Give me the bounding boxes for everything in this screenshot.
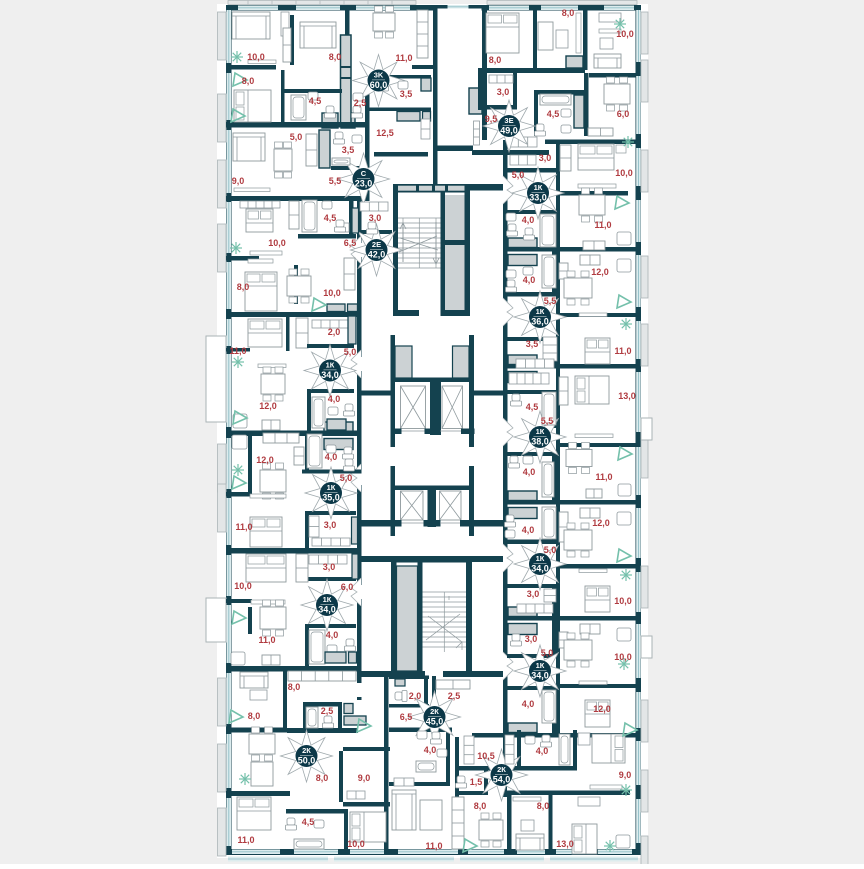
svg-text:12,5: 12,5: [376, 128, 394, 138]
svg-text:12,0: 12,0: [593, 704, 611, 714]
svg-text:5,0: 5,0: [290, 132, 303, 142]
svg-text:3,0: 3,0: [323, 562, 336, 572]
svg-text:4,0: 4,0: [325, 452, 338, 462]
svg-text:49,0: 49,0: [500, 126, 518, 136]
svg-text:12,0: 12,0: [256, 455, 274, 465]
svg-text:2К: 2К: [302, 746, 311, 755]
svg-text:3,0: 3,0: [369, 213, 382, 223]
svg-text:10,0: 10,0: [268, 238, 286, 248]
svg-text:3,0: 3,0: [525, 634, 538, 644]
svg-text:9,0: 9,0: [619, 770, 632, 780]
svg-text:4,0: 4,0: [536, 746, 549, 756]
svg-text:38,0: 38,0: [531, 437, 549, 447]
svg-text:5,0: 5,0: [340, 473, 353, 483]
svg-text:36,0: 36,0: [531, 317, 549, 327]
svg-text:1К: 1К: [326, 361, 335, 370]
svg-text:1К: 1К: [536, 554, 545, 563]
svg-text:6,0: 6,0: [617, 109, 630, 119]
svg-text:10,0: 10,0: [614, 596, 632, 606]
svg-text:10,0: 10,0: [234, 581, 252, 591]
svg-text:34,0: 34,0: [531, 671, 549, 681]
svg-text:2К: 2К: [430, 707, 439, 716]
svg-text:12,0: 12,0: [591, 267, 609, 277]
svg-text:4,0: 4,0: [523, 467, 536, 477]
svg-text:8,0: 8,0: [489, 55, 502, 65]
svg-text:11,0: 11,0: [237, 835, 254, 845]
svg-text:10,0: 10,0: [323, 288, 341, 298]
svg-text:5,0: 5,0: [512, 170, 525, 180]
svg-text:3,5: 3,5: [342, 145, 355, 155]
svg-text:54,0: 54,0: [493, 775, 511, 785]
svg-text:34,0: 34,0: [318, 605, 336, 615]
svg-text:42,0: 42,0: [368, 250, 386, 260]
svg-text:9,0: 9,0: [232, 176, 245, 186]
svg-text:12,0: 12,0: [592, 518, 610, 528]
svg-text:2,0: 2,0: [409, 691, 422, 701]
svg-text:6,5: 6,5: [400, 712, 413, 722]
svg-text:34,0: 34,0: [321, 370, 339, 380]
svg-text:5,0: 5,0: [344, 347, 357, 357]
svg-text:2,5: 2,5: [448, 691, 461, 701]
svg-text:6,5: 6,5: [344, 238, 357, 248]
svg-text:10,0: 10,0: [616, 29, 634, 39]
svg-text:10,0: 10,0: [347, 839, 365, 849]
svg-text:3,0: 3,0: [497, 87, 510, 97]
svg-text:8,0: 8,0: [316, 773, 329, 783]
svg-text:4,0: 4,0: [522, 215, 535, 225]
svg-text:11,0: 11,0: [425, 841, 442, 851]
svg-text:10,0: 10,0: [615, 168, 633, 178]
svg-text:1,5: 1,5: [470, 777, 483, 787]
svg-text:3K: 3K: [374, 71, 384, 80]
svg-text:10,5: 10,5: [477, 751, 495, 761]
svg-text:2,0: 2,0: [328, 327, 341, 337]
svg-text:4,5: 4,5: [324, 213, 337, 223]
svg-text:8,0: 8,0: [562, 8, 575, 18]
svg-text:1К: 1К: [536, 661, 545, 670]
svg-text:8,0: 8,0: [242, 76, 255, 86]
svg-text:23,0: 23,0: [355, 179, 373, 189]
svg-text:4,0: 4,0: [522, 699, 535, 709]
svg-text:8,0: 8,0: [237, 282, 250, 292]
svg-text:8,0: 8,0: [329, 52, 342, 62]
svg-text:3,0: 3,0: [324, 520, 337, 530]
svg-text:9,5: 9,5: [485, 114, 498, 124]
svg-text:9,0: 9,0: [358, 773, 371, 783]
svg-text:4,5: 4,5: [302, 817, 315, 827]
svg-text:11,0: 11,0: [614, 346, 631, 356]
svg-text:1К: 1К: [323, 595, 332, 604]
svg-text:11,0: 11,0: [395, 53, 412, 63]
svg-text:3,5: 3,5: [400, 89, 413, 99]
svg-text:8,0: 8,0: [248, 711, 261, 721]
svg-text:2,5: 2,5: [321, 706, 334, 716]
svg-text:4,5: 4,5: [547, 109, 560, 119]
svg-text:8,0: 8,0: [288, 682, 301, 692]
svg-text:50,0: 50,0: [298, 756, 316, 766]
svg-text:10,0: 10,0: [247, 52, 265, 62]
svg-text:4,5: 4,5: [309, 96, 322, 106]
svg-text:5,5: 5,5: [329, 176, 342, 186]
svg-text:3,0: 3,0: [527, 589, 540, 599]
svg-text:33,0: 33,0: [529, 193, 547, 203]
svg-text:5,0: 5,0: [544, 545, 557, 555]
svg-text:4,5: 4,5: [526, 402, 539, 412]
svg-text:11,0: 11,0: [229, 346, 246, 356]
svg-text:1К: 1К: [327, 483, 336, 492]
svg-text:13,0: 13,0: [556, 839, 574, 849]
svg-text:3Е: 3Е: [504, 116, 513, 125]
svg-text:8,0: 8,0: [474, 801, 487, 811]
svg-text:4,0: 4,0: [328, 394, 341, 404]
svg-text:1К: 1К: [536, 427, 545, 436]
svg-text:2К: 2К: [497, 765, 506, 774]
svg-text:4,0: 4,0: [522, 525, 535, 535]
svg-text:11,0: 11,0: [594, 220, 611, 230]
svg-text:1К: 1К: [536, 307, 545, 316]
svg-text:С: С: [361, 169, 367, 178]
svg-text:2,5: 2,5: [354, 98, 367, 108]
svg-text:8,0: 8,0: [537, 801, 550, 811]
svg-text:5,5: 5,5: [544, 296, 557, 306]
svg-text:11,0: 11,0: [235, 522, 252, 532]
svg-text:3,0: 3,0: [539, 153, 552, 163]
svg-text:5,5: 5,5: [541, 416, 554, 426]
svg-text:4,0: 4,0: [326, 630, 339, 640]
svg-text:10,0: 10,0: [614, 652, 632, 662]
svg-text:4,0: 4,0: [424, 745, 437, 755]
svg-text:35,0: 35,0: [322, 493, 340, 503]
svg-text:11,0: 11,0: [258, 635, 275, 645]
svg-text:11,0: 11,0: [595, 472, 612, 482]
svg-text:12,0: 12,0: [259, 401, 277, 411]
svg-text:6,0: 6,0: [341, 582, 354, 592]
svg-text:13,0: 13,0: [618, 391, 636, 401]
svg-text:34,0: 34,0: [531, 564, 549, 574]
svg-text:3,5: 3,5: [526, 339, 539, 349]
svg-text:1К: 1К: [534, 183, 543, 192]
svg-text:2Е: 2Е: [372, 240, 381, 249]
svg-text:4,0: 4,0: [523, 275, 536, 285]
svg-text:60,0: 60,0: [370, 80, 388, 90]
svg-text:5,0: 5,0: [541, 648, 554, 658]
svg-text:45,0: 45,0: [426, 717, 444, 727]
